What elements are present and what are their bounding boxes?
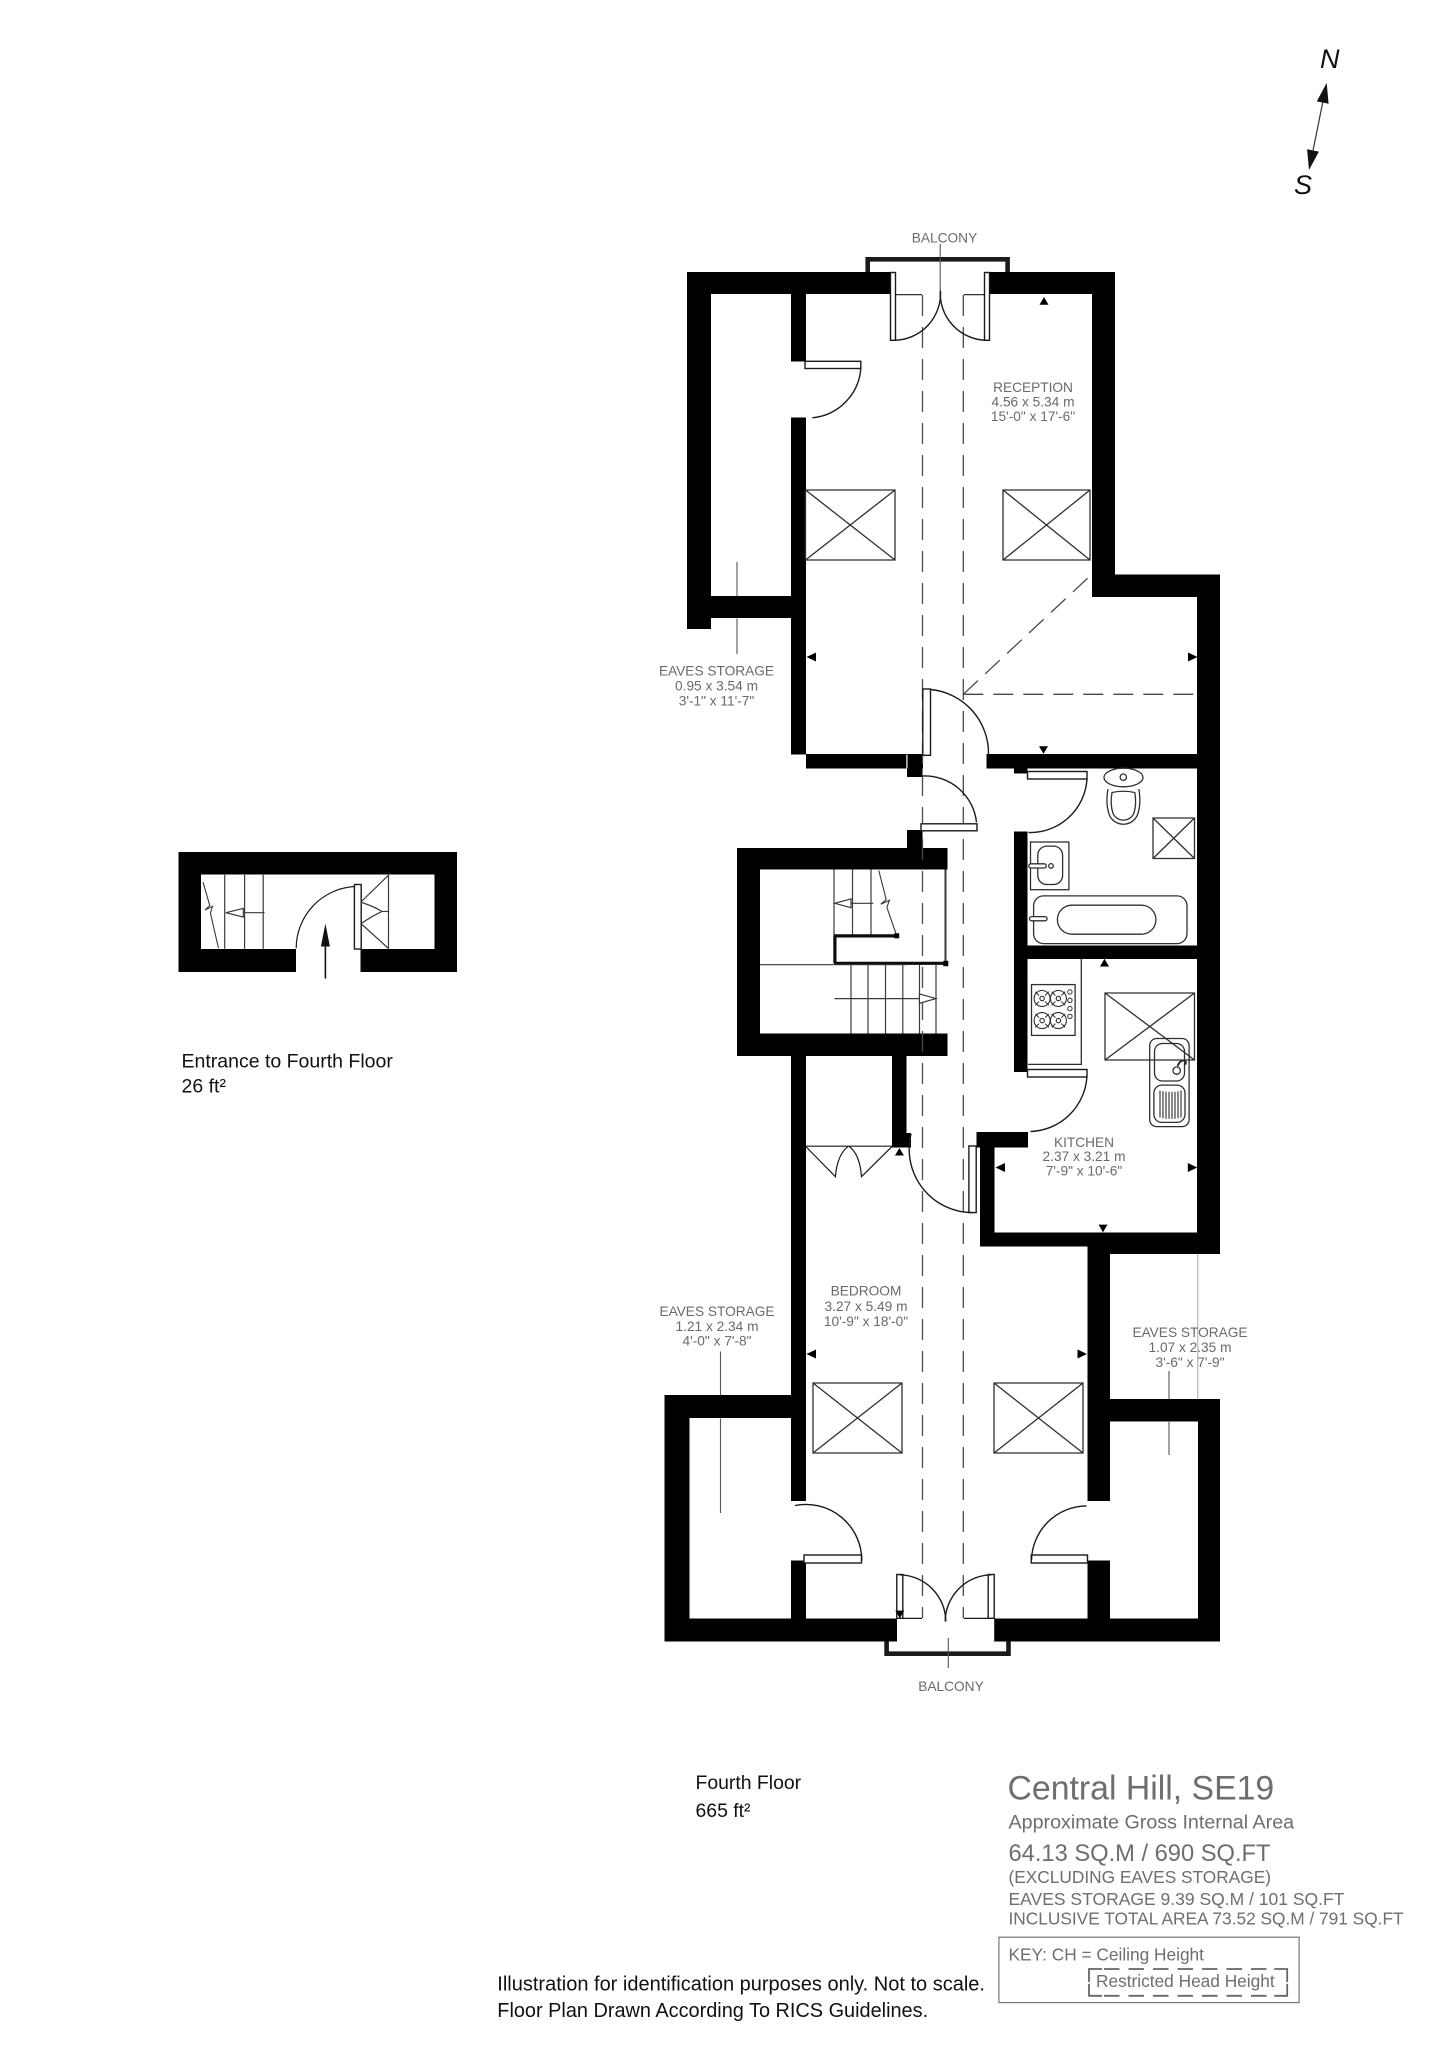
svg-text:Approximate Gross Internal Are: Approximate Gross Internal Area [1009, 1811, 1295, 1833]
svg-text:BALCONY: BALCONY [912, 230, 977, 245]
svg-text:BALCONY: BALCONY [918, 1679, 983, 1694]
svg-text:EAVES STORAGE: EAVES STORAGE [1132, 1325, 1247, 1340]
svg-text:KEY: CH = Ceiling Height: KEY: CH = Ceiling Height [1009, 1945, 1205, 1965]
svg-text:N: N [1320, 44, 1340, 74]
svg-text:1.21 x 2.34 m: 1.21 x 2.34 m [676, 1319, 759, 1334]
svg-text:3.27 x 5.49 m: 3.27 x 5.49 m [825, 1299, 908, 1314]
svg-text:Floor Plan Drawn According To: Floor Plan Drawn According To RICS Guide… [497, 2000, 928, 2022]
svg-text:4.56 x 5.34 m: 4.56 x 5.34 m [992, 395, 1075, 410]
svg-text:Central Hill, SE19: Central Hill, SE19 [1008, 1770, 1275, 1808]
svg-text:7'-9" x 10'-6": 7'-9" x 10'-6" [1046, 1164, 1123, 1179]
svg-text:(EXCLUDING EAVES STORAGE): (EXCLUDING EAVES STORAGE) [1009, 1867, 1271, 1887]
svg-text:Entrance to Fourth Floor: Entrance to Fourth Floor [182, 1051, 394, 1073]
svg-text:1.07 x 2.35 m: 1.07 x 2.35 m [1149, 1340, 1232, 1355]
svg-text:BEDROOM: BEDROOM [831, 1284, 902, 1299]
svg-text:EAVES STORAGE: EAVES STORAGE [659, 664, 774, 679]
svg-text:665 ft²: 665 ft² [696, 1800, 752, 1822]
svg-text:26 ft²: 26 ft² [182, 1076, 227, 1098]
svg-text:S: S [1294, 170, 1312, 200]
svg-text:64.13 SQ.M / 690 SQ.FT: 64.13 SQ.M / 690 SQ.FT [1009, 1841, 1271, 1867]
svg-text:EAVES STORAGE 9.39 SQ.M / 101: EAVES STORAGE 9.39 SQ.M / 101 SQ.FT [1009, 1889, 1345, 1909]
svg-text:Fourth Floor: Fourth Floor [696, 1772, 802, 1794]
svg-text:4'-0" x 7'-8": 4'-0" x 7'-8" [683, 1334, 752, 1349]
svg-text:EAVES STORAGE: EAVES STORAGE [659, 1304, 774, 1319]
svg-text:3'-1" x 11'-7": 3'-1" x 11'-7" [679, 694, 755, 709]
svg-text:Restricted Head Height: Restricted Head Height [1096, 1971, 1275, 1991]
svg-text:RECEPTION: RECEPTION [993, 380, 1073, 395]
svg-text:Illustration for identificatio: Illustration for identification purposes… [497, 1974, 985, 1996]
svg-text:0.95 x 3.54 m: 0.95 x 3.54 m [675, 679, 758, 694]
svg-text:KITCHEN: KITCHEN [1054, 1135, 1114, 1150]
svg-text:2.37 x 3.21 m: 2.37 x 3.21 m [1043, 1149, 1126, 1164]
svg-text:3'-6" x 7'-9": 3'-6" x 7'-9" [1156, 1355, 1225, 1370]
svg-text:15'-0" x 17'-6": 15'-0" x 17'-6" [991, 409, 1075, 424]
svg-text:10'-9" x 18'-0": 10'-9" x 18'-0" [824, 1314, 908, 1329]
svg-text:INCLUSIVE TOTAL AREA 73.52 SQ.: INCLUSIVE TOTAL AREA 73.52 SQ.M / 791 SQ… [1009, 1908, 1405, 1928]
